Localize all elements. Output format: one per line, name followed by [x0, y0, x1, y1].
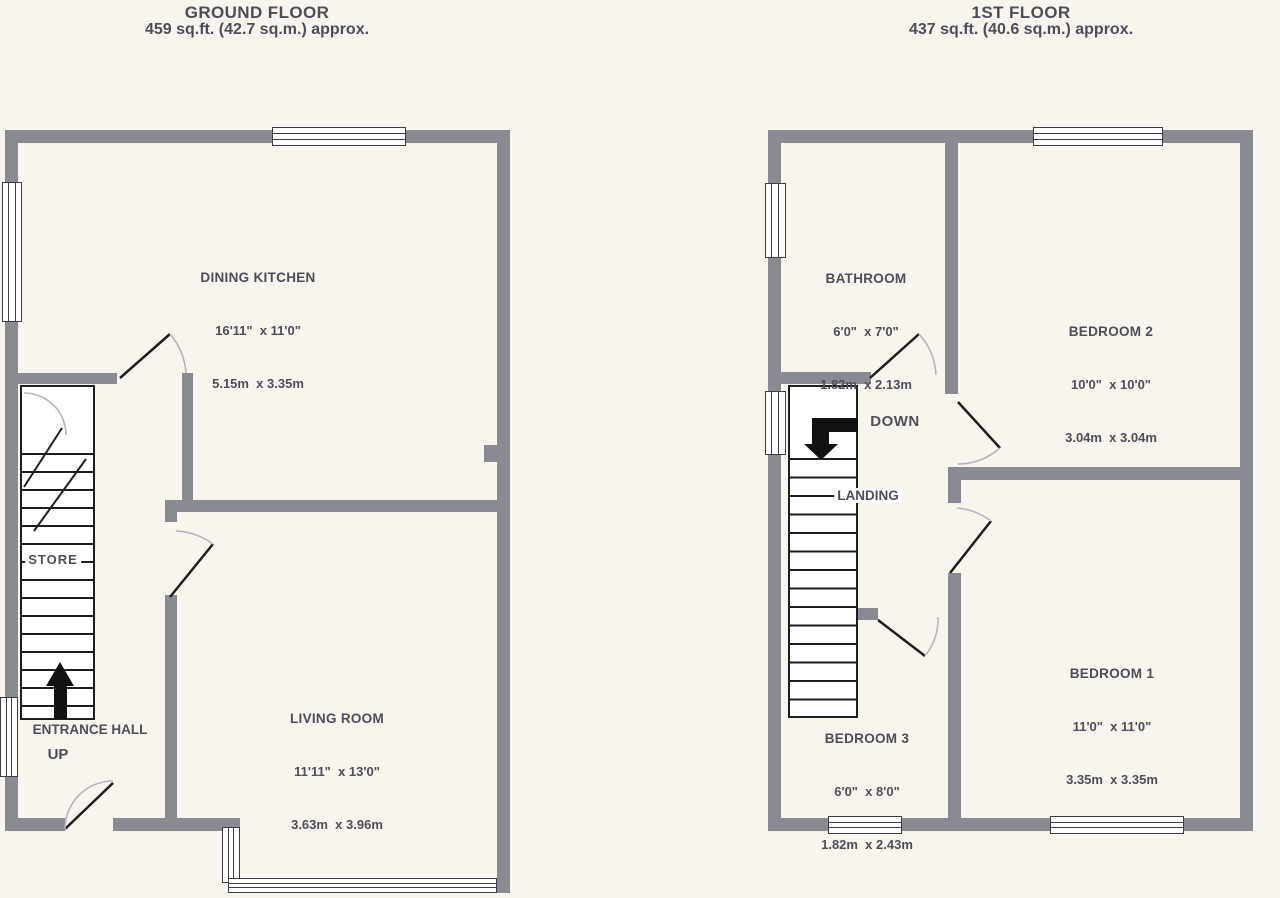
gf-front-door-leaf [65, 783, 113, 829]
gf-window-bay-side [222, 827, 240, 883]
gf-wall-bottom-hall [113, 818, 240, 831]
bedroom2-imperial: 10'0" x 10'0" [1065, 376, 1157, 393]
ff-bedroom3-door-arc [925, 617, 938, 656]
gf-wall-stub-vertical [182, 373, 193, 506]
bathroom-label: BATHROOM 6'0" x 7'0" 1.82m x 2.13m [820, 234, 912, 429]
ground-floor-title: GROUND FLOOR [185, 3, 330, 23]
ff-window-top [1033, 127, 1163, 146]
ff-bathroom-door-arc [919, 334, 936, 375]
gf-wall-hall-living-b [165, 595, 177, 818]
up-arrow-icon [46, 662, 74, 719]
landing-label: LANDING [834, 488, 902, 503]
ff-bedroom2-door-arc [958, 448, 1000, 464]
dining-kitchen-imperial: 16'11" x 11'0" [200, 322, 315, 339]
gf-wall-bottom-left [5, 818, 65, 831]
bedroom3-imperial: 6'0" x 8'0" [821, 783, 913, 800]
gf-kitchen-door-arc [170, 334, 186, 373]
gf-wall-living-top [165, 500, 510, 512]
ground-floor-area: 459 sq.ft. (42.7 sq.m.) approx. [145, 21, 369, 39]
dining-kitchen-name: DINING KITCHEN [200, 269, 315, 286]
ff-wall-bed3-stub [855, 608, 878, 620]
ff-bedroom1-door-leaf [950, 521, 991, 573]
ff-wall-landing-a [948, 480, 961, 503]
bedroom1-metric: 3.35m x 3.35m [1066, 771, 1158, 788]
living-room-name: LIVING ROOM [290, 710, 384, 727]
living-room-label: LIVING ROOM 11'11" x 13'0" 3.63m x 3.96m [290, 674, 384, 869]
dining-kitchen-metric: 5.15m x 3.35m [200, 375, 315, 392]
gf-wall-kitchen-hall [18, 373, 117, 384]
ff-bedroom3-door-leaf [878, 620, 925, 656]
living-room-metric: 3.63m x 3.96m [290, 816, 384, 833]
ff-bedroom2-door-leaf [958, 402, 1000, 448]
bedroom3-name: BEDROOM 3 [821, 730, 913, 747]
bedroom1-label: BEDROOM 1 11'0" x 11'0" 3.35m x 3.35m [1066, 629, 1158, 824]
bathroom-imperial: 6'0" x 7'0" [820, 323, 912, 340]
gf-wall-top [5, 130, 510, 143]
gf-window-living-bottom [228, 878, 497, 893]
bedroom2-label: BEDROOM 2 10'0" x 10'0" 3.04m x 3.04m [1065, 287, 1157, 482]
bedroom3-label: BEDROOM 3 6'0" x 8'0" 1.82m x 2.43m [821, 694, 913, 889]
entrance-hall-label: ENTRANCE HALL [33, 722, 148, 737]
gf-wall-pier [484, 445, 497, 462]
floorplan-canvas: GROUND FLOOR 459 sq.ft. (42.7 sq.m.) app… [0, 0, 1280, 898]
bedroom1-imperial: 11'0" x 11'0" [1066, 718, 1158, 735]
first-floor-title: 1ST FLOOR [972, 3, 1071, 23]
gf-living-door-leaf [170, 544, 213, 597]
bathroom-name: BATHROOM [820, 270, 912, 287]
gf-window-top [272, 127, 406, 146]
down-label: DOWN [870, 413, 920, 430]
bathroom-metric: 1.82m x 2.13m [820, 376, 912, 393]
bedroom2-name: BEDROOM 2 [1065, 323, 1157, 340]
gf-wall-hall-living-a [165, 512, 177, 522]
gf-living-door-arc [176, 531, 213, 544]
dining-kitchen-label: DINING KITCHEN 16'11" x 11'0" 5.15m x 3.… [200, 233, 315, 428]
up-label: UP [48, 746, 69, 763]
ff-window-bathroom-left [765, 183, 786, 258]
bedroom1-name: BEDROOM 1 [1066, 665, 1158, 682]
ff-wall-bathroom-bed2 [945, 143, 958, 394]
up-arrow-head [46, 662, 74, 686]
store-label: STORE [25, 552, 81, 567]
ff-wall-right [1240, 130, 1253, 831]
ff-bedroom1-door-arc [957, 508, 991, 521]
gf-kitchen-door-leaf [120, 334, 170, 378]
living-room-imperial: 11'11" x 13'0" [290, 763, 384, 780]
gf-front-door-arc [65, 781, 113, 829]
first-floor-area: 437 sq.ft. (40.6 sq.m.) approx. [909, 21, 1133, 39]
down-arrow-head [804, 444, 838, 460]
ff-wall-top [768, 130, 1253, 143]
gf-window-kitchen-left [2, 182, 22, 322]
bedroom3-metric: 1.82m x 2.43m [821, 836, 913, 853]
ff-window-stairs-left [765, 391, 786, 455]
bedroom2-metric: 3.04m x 3.04m [1065, 429, 1157, 446]
gf-window-hall-left [0, 697, 18, 777]
up-arrow-shaft [54, 686, 67, 719]
ff-wall-bed3-bed1 [948, 573, 961, 818]
